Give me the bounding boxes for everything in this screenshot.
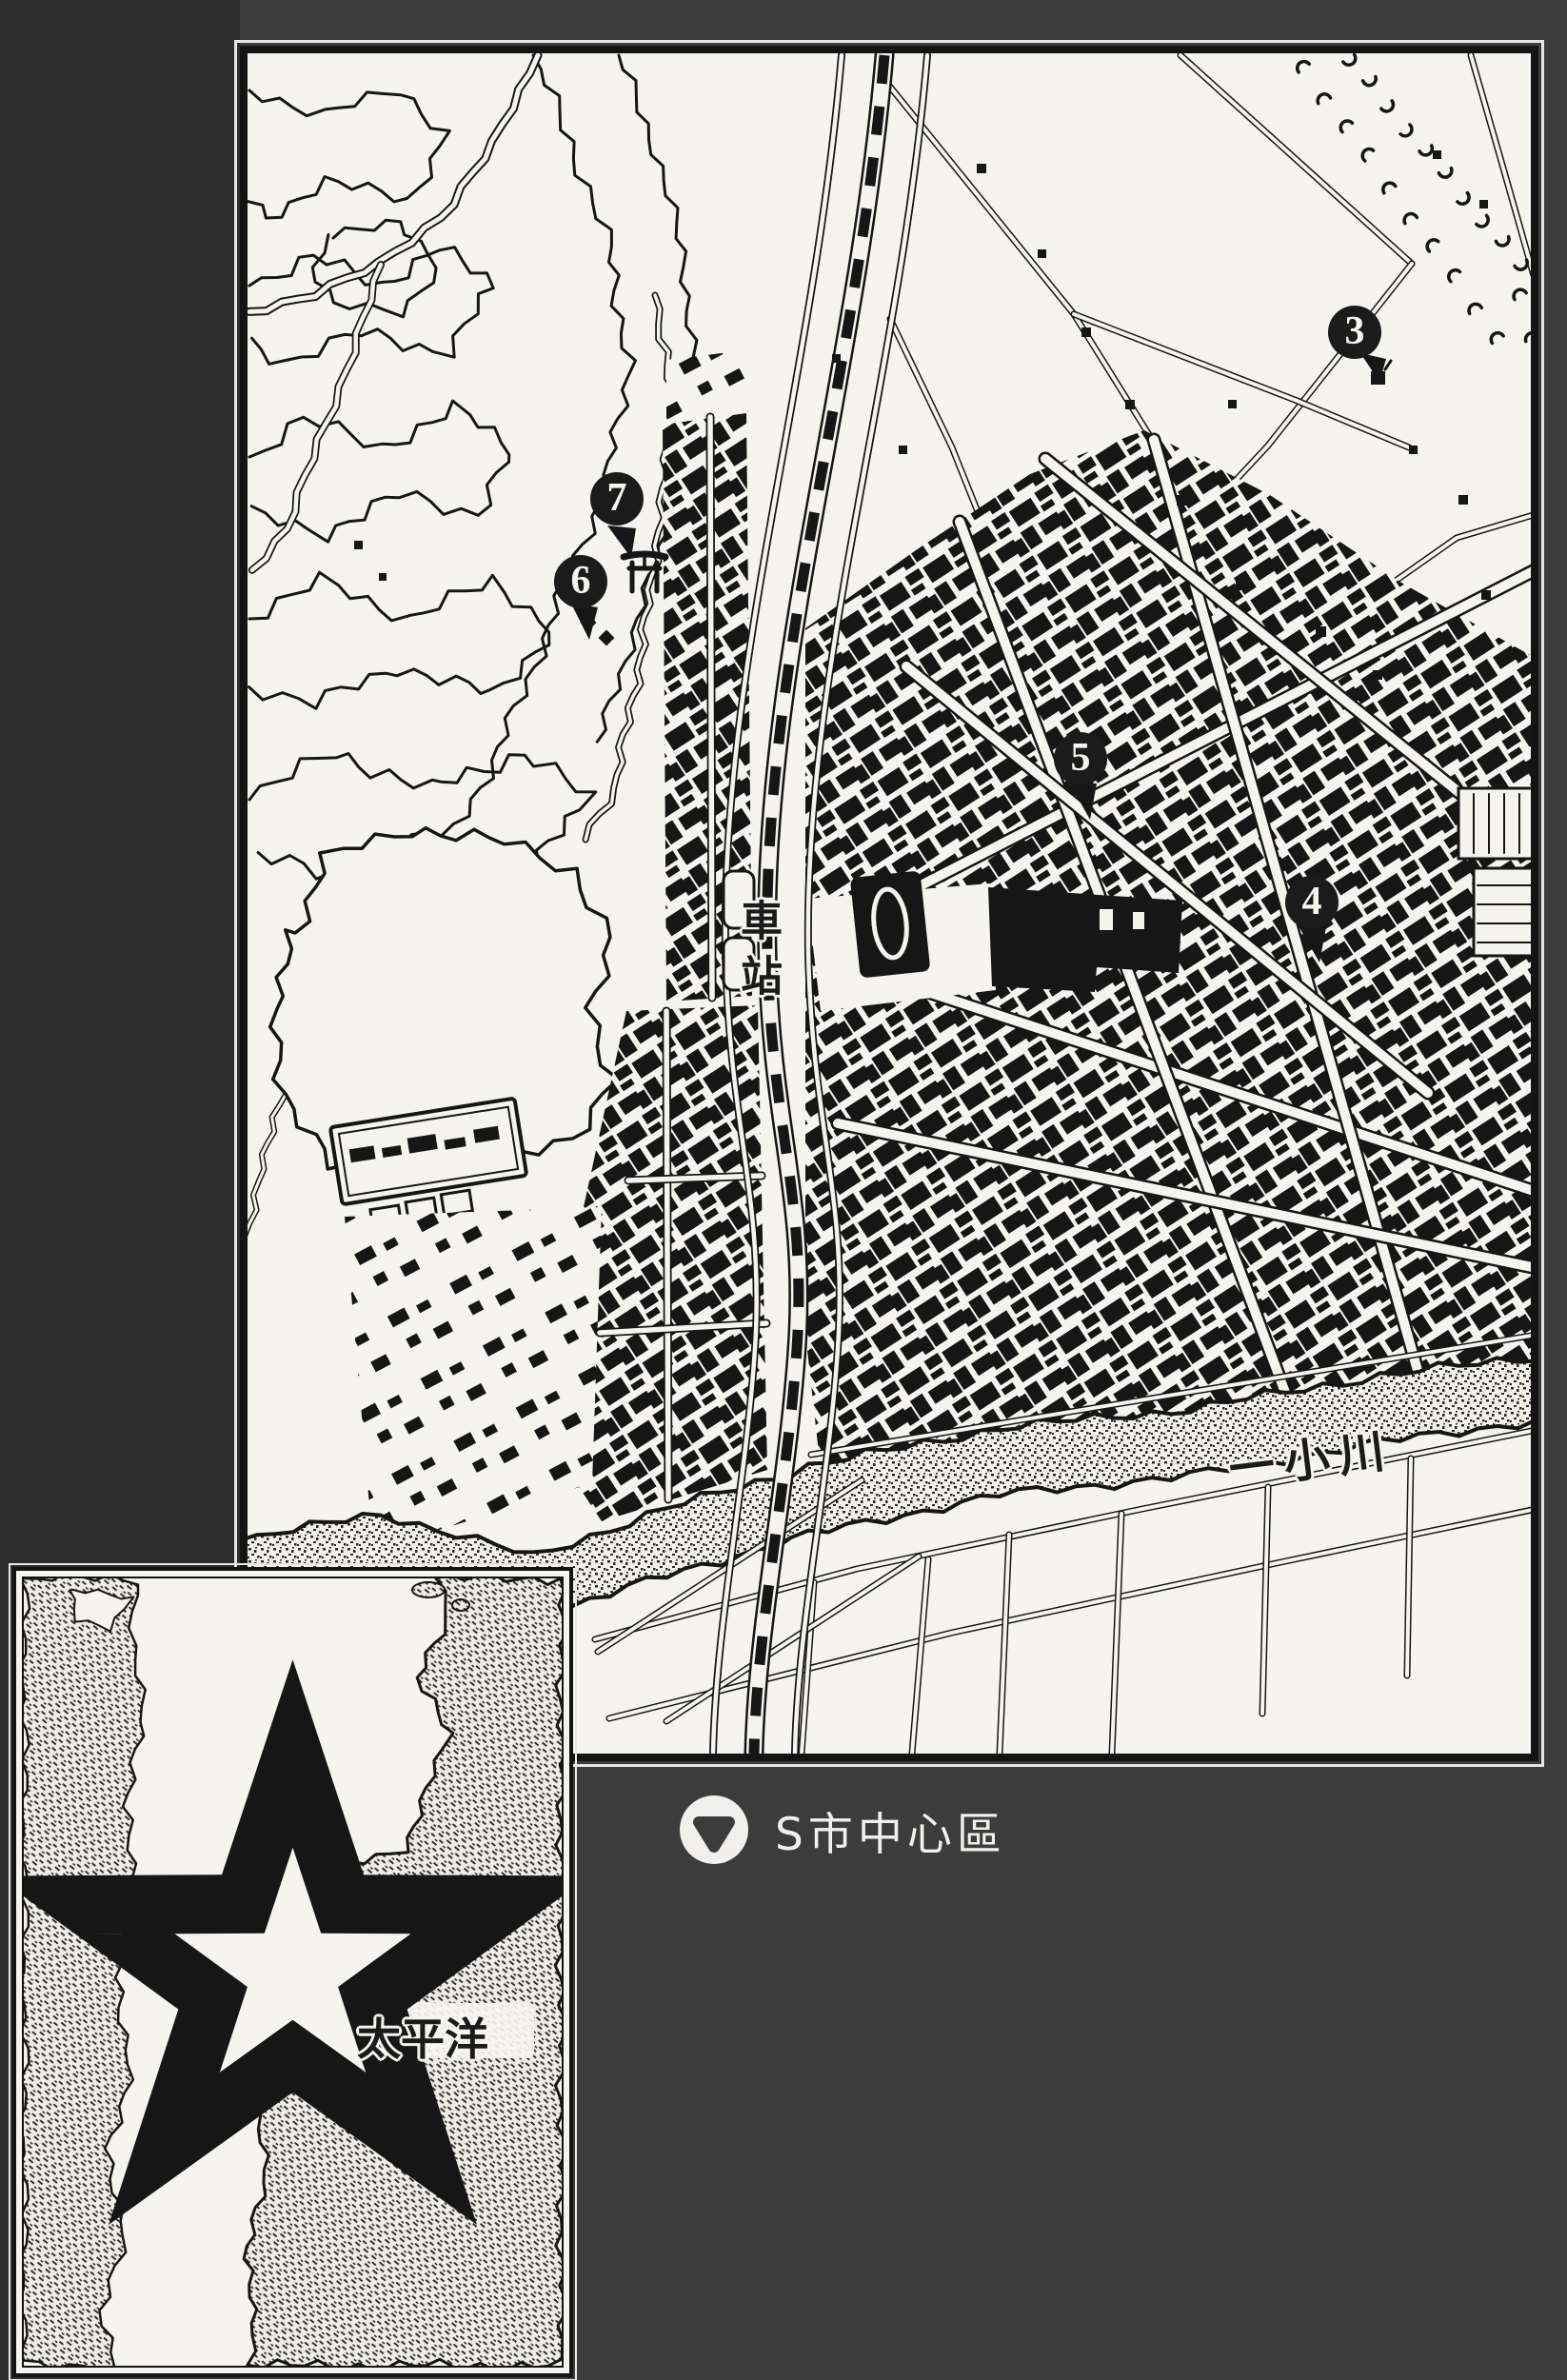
inset-content: S市 太平洋 — [22, 1577, 564, 2368]
caption-text: S市中心區 — [775, 1797, 1006, 1863]
map-marker-5: 5 — [1054, 732, 1107, 785]
ocean-name-label: 太平洋 — [357, 2005, 488, 2068]
marker-6-number: 6 — [571, 561, 591, 601]
manga-map-page: { "colors": { "paper": "#f6f4ef", "ink":… — [0, 0, 1567, 2380]
star-icon — [24, 1578, 562, 2366]
down-triangle-circle-icon — [678, 1794, 750, 1866]
marker-7-number: 7 — [607, 478, 627, 518]
city-map: 車站 一小川 3 4 5 6 7 — [240, 46, 1538, 1761]
torii-icon — [624, 554, 665, 591]
map-marker-4: 4 — [1285, 876, 1339, 929]
river-name-label: 一小川 — [1224, 1413, 1397, 1499]
marker-4-number: 4 — [1302, 882, 1322, 922]
map-caption: S市中心區 — [678, 1794, 1006, 1866]
train-station-label: 車站 — [742, 899, 787, 1009]
map-marker-3: 3 — [1328, 306, 1381, 359]
map-marker-6: 6 — [554, 555, 607, 608]
marker-5-number: 5 — [1071, 738, 1091, 778]
map-marker-7: 7 — [590, 472, 644, 526]
region-inset-map: S市 太平洋 — [12, 1567, 573, 2377]
marker-3-number: 3 — [1345, 311, 1365, 351]
